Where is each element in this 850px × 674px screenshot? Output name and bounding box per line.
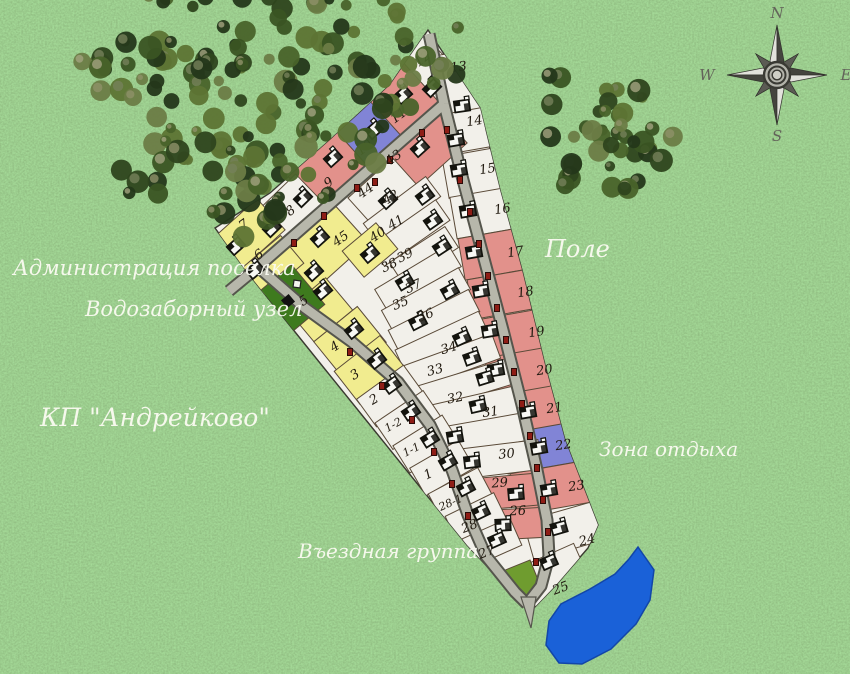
gate-marker bbox=[380, 383, 385, 390]
tree-highlight bbox=[167, 124, 172, 129]
tree-highlight bbox=[558, 178, 566, 186]
tree-highlight bbox=[76, 55, 84, 63]
tree-icon bbox=[603, 137, 619, 153]
tree-highlight bbox=[305, 124, 312, 131]
gate-marker bbox=[445, 127, 450, 134]
plot-number-17: 17 bbox=[506, 244, 525, 261]
gate-marker bbox=[477, 241, 482, 248]
compass-south-label: S bbox=[772, 127, 782, 145]
plot-number-26: 26 bbox=[508, 504, 526, 520]
gate-marker bbox=[495, 305, 500, 312]
gate-marker bbox=[450, 481, 455, 488]
tree-icon bbox=[146, 107, 167, 128]
tree-icon bbox=[627, 135, 640, 148]
tree-highlight bbox=[329, 67, 336, 74]
plot-number-19: 19 bbox=[527, 324, 546, 341]
tree-icon bbox=[264, 54, 275, 65]
tree-highlight bbox=[418, 49, 427, 58]
tree-icon bbox=[376, 119, 390, 133]
tree-highlight bbox=[221, 188, 227, 194]
tree-icon bbox=[401, 98, 419, 116]
plot-number-15: 15 bbox=[478, 161, 497, 178]
gate-marker bbox=[373, 179, 378, 186]
tree-icon bbox=[333, 18, 349, 34]
tree-highlight bbox=[166, 38, 171, 43]
tree-highlight bbox=[208, 207, 214, 213]
compass-west-label: W bbox=[699, 66, 716, 84]
gate-marker bbox=[420, 130, 425, 137]
plot-number-22: 22 bbox=[553, 437, 573, 454]
label-water-intake: Водозаборный узел bbox=[84, 297, 302, 321]
tree-highlight bbox=[398, 79, 403, 84]
tree-icon bbox=[202, 161, 223, 182]
tree-highlight bbox=[93, 83, 102, 92]
tree-icon bbox=[233, 226, 255, 248]
gate-marker bbox=[486, 273, 491, 280]
gate-marker bbox=[292, 240, 297, 247]
tree-icon bbox=[320, 130, 331, 141]
tree-highlight bbox=[620, 131, 627, 138]
gate-marker bbox=[348, 349, 353, 356]
tree-highlight bbox=[228, 164, 238, 174]
tree-icon bbox=[243, 131, 254, 142]
gate-marker bbox=[520, 401, 525, 408]
tree-icon bbox=[378, 74, 392, 88]
gate-marker bbox=[535, 465, 540, 472]
tree-icon bbox=[256, 92, 278, 114]
tree-icon bbox=[230, 39, 247, 56]
gate-marker bbox=[504, 337, 509, 344]
tree-highlight bbox=[92, 59, 102, 69]
tree-icon bbox=[214, 76, 224, 86]
tree-icon bbox=[235, 94, 248, 107]
tree-icon bbox=[405, 70, 422, 87]
tree-icon bbox=[341, 0, 352, 11]
tree-highlight bbox=[354, 85, 364, 95]
tree-icon bbox=[353, 55, 377, 79]
label-administration: Администрация поселка bbox=[11, 256, 296, 280]
label-entrance-group: Въездная группа bbox=[297, 539, 478, 563]
tree-icon bbox=[618, 182, 632, 196]
gate-marker bbox=[322, 213, 327, 220]
plot-number-31: 31 bbox=[481, 404, 500, 421]
label-recreation-area: Зона отдыха bbox=[599, 437, 738, 461]
plot-number-20: 20 bbox=[534, 362, 554, 379]
tree-icon bbox=[218, 86, 232, 100]
tree-highlight bbox=[307, 108, 316, 117]
compass-north-label: N bbox=[769, 4, 784, 22]
gate-marker bbox=[458, 177, 463, 184]
tree-icon bbox=[148, 183, 168, 203]
tree-icon bbox=[195, 131, 217, 153]
tree-icon bbox=[395, 27, 414, 46]
plot-number-30: 30 bbox=[498, 446, 516, 463]
tree-highlight bbox=[630, 82, 640, 92]
tree-highlight bbox=[126, 90, 134, 98]
gate-marker bbox=[541, 497, 546, 504]
tree-icon bbox=[323, 43, 334, 54]
tree-highlight bbox=[544, 70, 551, 77]
tree-highlight bbox=[129, 173, 139, 183]
tree-highlight bbox=[150, 174, 159, 183]
tree-highlight bbox=[647, 123, 654, 130]
tree-highlight bbox=[118, 34, 128, 44]
tree-highlight bbox=[218, 22, 224, 28]
tree-highlight bbox=[237, 60, 243, 66]
tree-icon bbox=[269, 9, 287, 27]
tree-icon bbox=[388, 3, 406, 21]
tree-highlight bbox=[284, 72, 290, 78]
tree-highlight bbox=[601, 106, 606, 111]
plot-number-23: 23 bbox=[566, 478, 586, 495]
settlement-map: 1213141516171819202122232425111094344454… bbox=[0, 0, 850, 674]
compass-east-label: E bbox=[840, 66, 850, 84]
plot-number-32: 32 bbox=[446, 390, 465, 408]
tree-highlight bbox=[434, 60, 444, 70]
gate-marker bbox=[534, 559, 539, 566]
tree-icon bbox=[150, 74, 165, 89]
tree-highlight bbox=[283, 165, 292, 174]
tree-icon bbox=[278, 46, 300, 68]
tree-highlight bbox=[193, 127, 198, 132]
tree-icon bbox=[365, 152, 386, 173]
tree-icon bbox=[264, 199, 286, 221]
gate-marker bbox=[468, 209, 473, 216]
gate-marker bbox=[410, 417, 415, 424]
tree-highlight bbox=[544, 96, 554, 106]
tree-highlight bbox=[314, 96, 321, 103]
tree-highlight bbox=[193, 60, 203, 70]
label-settlement-name: КП "Андрейково" bbox=[39, 403, 270, 432]
tree-highlight bbox=[123, 59, 130, 66]
tree-highlight bbox=[113, 81, 123, 91]
tree-highlight bbox=[606, 163, 611, 168]
tree-icon bbox=[301, 167, 317, 183]
tree-icon bbox=[256, 114, 277, 135]
label-field: Поле bbox=[544, 235, 610, 263]
plot-number-29: 29 bbox=[490, 475, 509, 491]
tree-icon bbox=[568, 131, 580, 143]
gate-marker bbox=[512, 369, 517, 376]
tree-highlight bbox=[616, 120, 622, 126]
settlement-map-canvas: 1213141516171819202122232425111094344454… bbox=[0, 0, 850, 674]
gate-marker bbox=[546, 529, 551, 536]
tree-icon bbox=[390, 55, 401, 66]
tree-icon bbox=[283, 79, 304, 100]
tree-highlight bbox=[138, 75, 143, 80]
tree-icon bbox=[177, 45, 194, 62]
tree-icon bbox=[372, 98, 393, 119]
tree-highlight bbox=[453, 23, 458, 28]
tree-icon bbox=[187, 1, 198, 12]
tree-icon bbox=[243, 146, 265, 168]
tree-highlight bbox=[665, 129, 674, 138]
tree-icon bbox=[164, 93, 180, 109]
tree-icon bbox=[561, 153, 583, 175]
tree-highlight bbox=[357, 131, 367, 141]
tree-icon bbox=[189, 86, 209, 106]
tree-icon bbox=[348, 26, 360, 38]
tree-highlight bbox=[319, 193, 324, 198]
gate-marker bbox=[528, 433, 533, 440]
tree-highlight bbox=[250, 176, 260, 186]
tree-highlight bbox=[125, 188, 131, 194]
tree-icon bbox=[582, 120, 603, 141]
tree-highlight bbox=[161, 137, 166, 142]
tree-highlight bbox=[653, 152, 663, 162]
tree-highlight bbox=[349, 161, 354, 166]
tree-highlight bbox=[169, 143, 180, 154]
tree-icon bbox=[296, 98, 306, 108]
plot-number-18: 18 bbox=[516, 284, 535, 301]
tree-icon bbox=[203, 108, 225, 130]
tree-highlight bbox=[155, 154, 165, 164]
gate-marker bbox=[432, 449, 437, 456]
plot-number-14: 14 bbox=[465, 113, 484, 130]
plot-number-16: 16 bbox=[493, 201, 512, 218]
tree-highlight bbox=[307, 133, 312, 138]
plot-number-21: 21 bbox=[544, 400, 564, 417]
tree-highlight bbox=[543, 129, 552, 138]
tree-highlight bbox=[227, 147, 232, 152]
tree-icon bbox=[138, 36, 162, 60]
